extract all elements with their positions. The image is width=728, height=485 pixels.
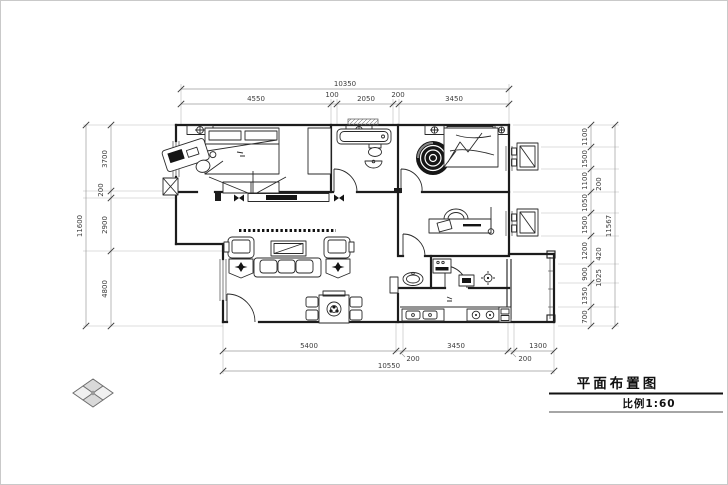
scale-label: 比例1:60 <box>622 397 675 410</box>
speaker-icon <box>334 195 344 202</box>
study-door-arc <box>403 234 425 256</box>
living-room <box>163 178 398 323</box>
drawing-title: 平面布置图 <box>577 375 660 392</box>
dim-bottom-4: 200 <box>518 355 531 363</box>
dimension-left: 3700 200 2900 4800 11600 <box>76 122 114 329</box>
dim-top-4: 200 <box>391 91 404 99</box>
kitchen-cabinet <box>499 307 511 322</box>
ac-unit-outdoor <box>512 209 539 236</box>
dim-bottom-3: 3450 <box>447 342 465 350</box>
bed-single <box>444 128 498 167</box>
study-chair <box>444 209 468 219</box>
diamond-lattice-logo <box>73 379 113 407</box>
side-table-right <box>326 259 350 278</box>
dim-right-5: 1500 <box>581 216 589 234</box>
wardrobe <box>308 128 331 174</box>
dim-right-overall: 11567 <box>605 215 613 237</box>
dim-right-9: 700 <box>581 310 589 323</box>
washing-machine <box>433 259 451 273</box>
kitchen <box>400 307 511 322</box>
dim-top-3: 2050 <box>357 95 375 103</box>
dim-top-overall: 10350 <box>334 80 356 88</box>
dim-right-4: 1050 <box>581 194 589 212</box>
wash-basin-2 <box>403 272 423 285</box>
dim-right-3: 1100 <box>581 172 589 190</box>
dim-right-sub-3: 1025 <box>595 269 603 287</box>
sofa <box>254 258 321 277</box>
side-table-left <box>229 259 253 278</box>
dim-top-5: 3450 <box>445 95 463 103</box>
dim-left-overall: 11600 <box>76 215 84 237</box>
study <box>429 207 538 236</box>
sideboard <box>390 277 398 293</box>
floor-plan-sheet: 10350 4550 100 2050 200 3450 5400 200 34… <box>0 0 728 485</box>
dim-left-3: 2900 <box>101 216 109 234</box>
speaker-icon <box>234 195 244 202</box>
bedroom-2 <box>416 126 538 176</box>
dimension-top: 10350 4550 100 2050 200 3450 <box>178 80 512 107</box>
dim-bottom-5: 1300 <box>529 342 547 350</box>
small-appliance <box>459 275 474 286</box>
dim-right-sub-1: 200 <box>595 177 603 190</box>
bedside-bench <box>223 182 279 193</box>
entry-door-arc <box>227 294 255 322</box>
dining-chair <box>350 297 362 307</box>
dining-chair <box>350 310 362 320</box>
armchair-right <box>324 237 354 258</box>
dimension-right: 1100 1500 1100 1050 1500 1200 900 1350 7… <box>581 122 618 329</box>
cooktop <box>467 309 499 321</box>
tv <box>266 195 297 200</box>
coffee-table <box>271 241 306 256</box>
dining-set <box>306 291 362 323</box>
dim-right-1: 1100 <box>581 128 589 146</box>
dim-right-8: 1350 <box>581 287 589 305</box>
dim-left-4: 4800 <box>101 280 109 298</box>
wall-pier <box>215 192 221 201</box>
dim-bottom-overall: 10550 <box>378 362 400 370</box>
entry-cabinet <box>163 178 178 195</box>
dim-top-2: 100 <box>325 91 338 99</box>
armchair-left <box>224 237 254 258</box>
dim-bottom-2: 200 <box>406 355 419 363</box>
dim-bottom-1: 5400 <box>300 342 318 350</box>
dim-right-6: 1200 <box>581 242 589 260</box>
tiny-annotation-mark <box>447 297 452 301</box>
desk-item <box>463 224 481 226</box>
bathtub <box>337 129 391 144</box>
wall-light-symbol <box>425 126 444 135</box>
bed-double <box>205 128 279 174</box>
floor-plan-drawing: 10350 4550 100 2050 200 3450 5400 200 34… <box>1 1 728 485</box>
dining-chair <box>306 310 318 320</box>
toilet <box>369 144 382 157</box>
dimension-bottom: 5400 200 3450 200 1300 10550 <box>220 342 557 374</box>
bathroom-main <box>337 129 391 168</box>
dim-top-1: 4550 <box>247 95 265 103</box>
dim-left-2: 200 <box>97 183 105 196</box>
study-desk <box>429 219 491 233</box>
bedroom2-door-arc <box>401 169 422 192</box>
window-living-left <box>220 259 226 301</box>
utility-corridor <box>403 259 495 301</box>
dining-table <box>319 295 349 323</box>
floor-drain <box>481 271 495 285</box>
dim-right-7: 900 <box>581 267 589 280</box>
duct-shaft <box>348 119 378 125</box>
extension-lines <box>83 84 619 374</box>
title-block: 平面布置图 比例1:60 <box>549 375 723 412</box>
dim-right-2: 1500 <box>581 150 589 168</box>
bathroom-door-arc <box>334 169 357 192</box>
wash-basin <box>365 160 382 168</box>
ac-unit-outdoor <box>512 143 539 170</box>
tv-console <box>234 194 344 202</box>
kitchen-sink <box>402 309 444 321</box>
dim-right-sub-2: 420 <box>595 247 603 260</box>
dim-left-1: 3700 <box>101 150 109 168</box>
dining-chair <box>306 297 318 307</box>
